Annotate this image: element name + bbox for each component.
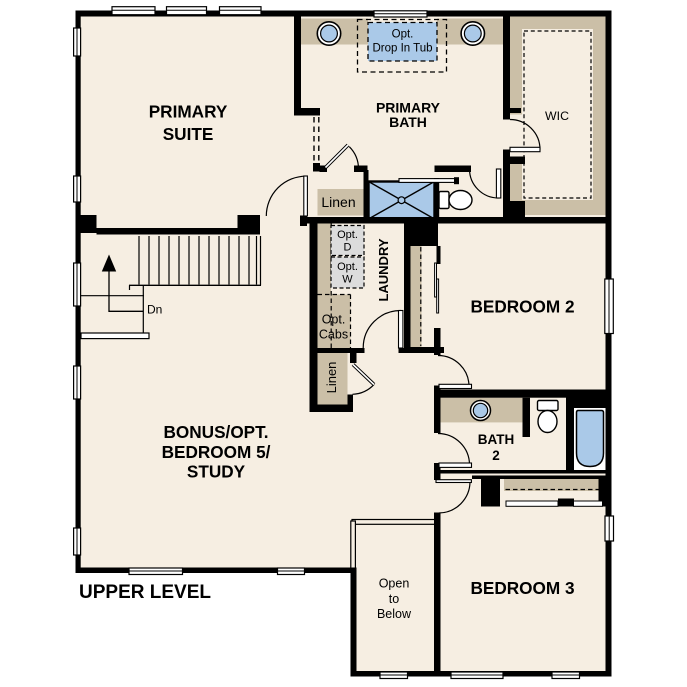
svg-text:D: D <box>344 242 352 254</box>
svg-text:W: W <box>342 274 353 286</box>
svg-text:Opt.: Opt. <box>337 229 358 241</box>
svg-text:Opt.: Opt. <box>337 261 358 273</box>
svg-text:BONUS/OPT.: BONUS/OPT. <box>163 422 268 442</box>
svg-text:PRIMARY: PRIMARY <box>149 102 228 122</box>
svg-text:BEDROOM 3: BEDROOM 3 <box>470 578 574 598</box>
svg-text:Cabs: Cabs <box>319 328 348 342</box>
svg-text:BATH: BATH <box>478 432 515 447</box>
svg-text:2: 2 <box>492 448 500 463</box>
svg-text:to: to <box>389 592 399 606</box>
svg-text:Drop In Tub: Drop In Tub <box>372 43 432 55</box>
svg-text:WIC: WIC <box>545 109 569 123</box>
svg-text:BATH: BATH <box>389 114 427 130</box>
svg-text:Linen: Linen <box>321 194 355 210</box>
svg-text:Dn: Dn <box>147 303 162 317</box>
svg-text:Linen: Linen <box>324 362 339 394</box>
svg-text:Opt.: Opt. <box>322 313 346 327</box>
svg-text:Below: Below <box>377 607 412 621</box>
svg-text:SUITE: SUITE <box>163 124 214 144</box>
svg-text:BEDROOM 2: BEDROOM 2 <box>470 297 574 317</box>
svg-text:LAUNDRY: LAUNDRY <box>376 238 391 301</box>
svg-text:BEDROOM 5/: BEDROOM 5/ <box>162 442 271 462</box>
svg-text:STUDY: STUDY <box>187 462 246 482</box>
svg-text:UPPER LEVEL: UPPER LEVEL <box>79 582 211 603</box>
svg-text:Opt.: Opt. <box>392 29 414 41</box>
svg-text:Open: Open <box>379 577 410 591</box>
